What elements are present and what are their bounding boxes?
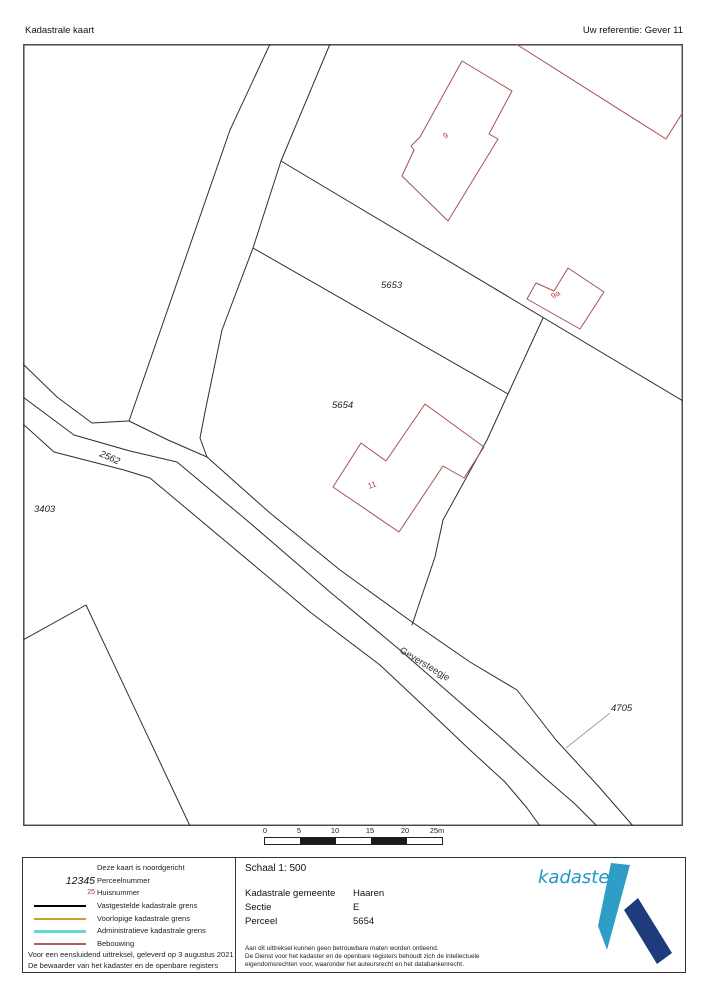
kadaster-logo-text: kadaster [538,867,618,888]
scale-bar-strip [264,837,443,845]
map-labels-group: 56535654256234034705Geversteegje99a11 [34,130,633,714]
kadaster-logo: kadaster [501,859,681,969]
scale-segment [407,838,442,844]
legend-label: Bebouwing [97,939,134,948]
scale-tick-5: 5 [297,826,301,835]
legend-label: Perceelnummer [97,876,150,885]
legend-row-provisional-boundary: Voorlopige kadastrale grens [23,913,233,926]
legend-list: Deze kaart is noordgericht 12345 Perceel… [23,862,233,951]
document-title: Kadastrale kaart [25,25,94,36]
map-border [24,45,683,826]
legend-label: Administratieve kadastrale grens [97,926,206,935]
issue-statement-line2: De bewaarder van het kadaster en de open… [28,961,234,972]
scale-segment [265,838,300,844]
scale-text: Schaal 1: 500 [245,863,306,874]
legend-label: Voorlopige kadastrale grens [97,914,190,923]
house-number-11: 11 [367,479,378,490]
label-leader-line-4705 [566,713,610,748]
legend-label: Deze kaart is noordgericht [97,863,185,872]
scale-segment [300,838,335,844]
parcel-boundary-southwest [23,605,190,826]
disclaimer-line2: De Dienst voor het kadaster en de openba… [245,953,479,961]
scale-tick-25: 25m [430,826,445,835]
scale-segment [371,838,406,844]
kadaster-logo-shape-dark [624,898,672,964]
disclaimer-line3: eigendomsrechten voor, waaronder het aut… [245,961,479,969]
street-label-geversteegje: Geversteegje [397,645,451,684]
parcel-label-3403: 3403 [34,504,56,515]
parcel-number-symbol: 12345 [33,875,95,888]
parcel-boundary-5653-north [281,161,683,401]
legend-row-administrative-boundary: Administratieve kadastrale grens [23,925,233,938]
parcel-boundary-5653-south [253,248,508,394]
administrative-boundary-swatch [34,930,86,932]
parcel-label-4705: 4705 [611,703,633,714]
scale-tick-15: 15 [366,826,374,835]
parcel-label-5653: 5653 [381,280,403,291]
reference-text: Uw referentie: Gever 11 [583,25,683,36]
disclaimer-line1: Aan dit uittreksel kunnen geen betrouwba… [245,945,479,953]
provisional-boundary-swatch [34,918,86,920]
legend-label: Huisnummer [97,888,140,897]
info-label: Perceel [245,916,277,927]
parcel-boundary-west [23,364,129,423]
building-11-outline [333,404,484,532]
info-label: Kadastrale gemeente [245,888,335,899]
building-9a-outline [527,268,604,329]
parcel-label-5654: 5654 [332,400,353,411]
parcel-boundary-5654-east [412,318,543,625]
issue-statement: Voor een eensluidend uittreksel, gelever… [28,950,234,971]
house-number-symbol: 25 [33,887,103,900]
legend-row-north: Deze kaart is noordgericht [23,862,233,875]
legend-row-established-boundary: Vastgestelde kadastrale grens [23,900,233,913]
road-strip-right-edge [200,44,330,457]
info-value: E [353,902,359,913]
building-9-outline [402,61,512,221]
road-top-edge [207,457,633,826]
legend-row-building: Bebouwing [23,938,233,951]
disclaimer-text: Aan dit uittreksel kunnen geen betrouwba… [245,945,479,969]
panel-divider [235,858,236,972]
info-value: 5654 [353,916,374,927]
legend-panel: Deze kaart is noordgericht 12345 Perceel… [22,857,686,973]
building-swatch [34,943,86,945]
scale-tick-10: 10 [331,826,339,835]
legend-row-parcel-number: 12345 Perceelnummer [23,875,233,888]
scale-tick-20: 20 [401,826,409,835]
info-label: Sectie [245,902,271,913]
scale-tick-0: 0 [263,826,267,835]
parcel-label-2562: 2562 [97,448,122,467]
house-number-9: 9 [442,130,451,140]
road-strip-left-edge [129,44,270,421]
established-boundary-swatch [34,905,86,907]
scale-segment [336,838,371,844]
cadastral-map: 56535654256234034705Geversteegje99a11 [23,44,683,826]
legend-label: Vastgestelde kadastrale grens [97,901,197,910]
junction-segment [129,421,207,457]
scale-bar: 0 5 10 15 20 25m [264,826,442,846]
legend-row-house-number: 25 Huisnummer [23,887,233,900]
cadastral-extract-page: Kadastrale kaart Uw referentie: Gever 11… [0,0,707,1000]
info-value: Haaren [353,888,384,899]
issue-statement-line1: Voor een eensluidend uittreksel, gelever… [28,950,234,961]
offmap-building-outline [516,44,683,139]
